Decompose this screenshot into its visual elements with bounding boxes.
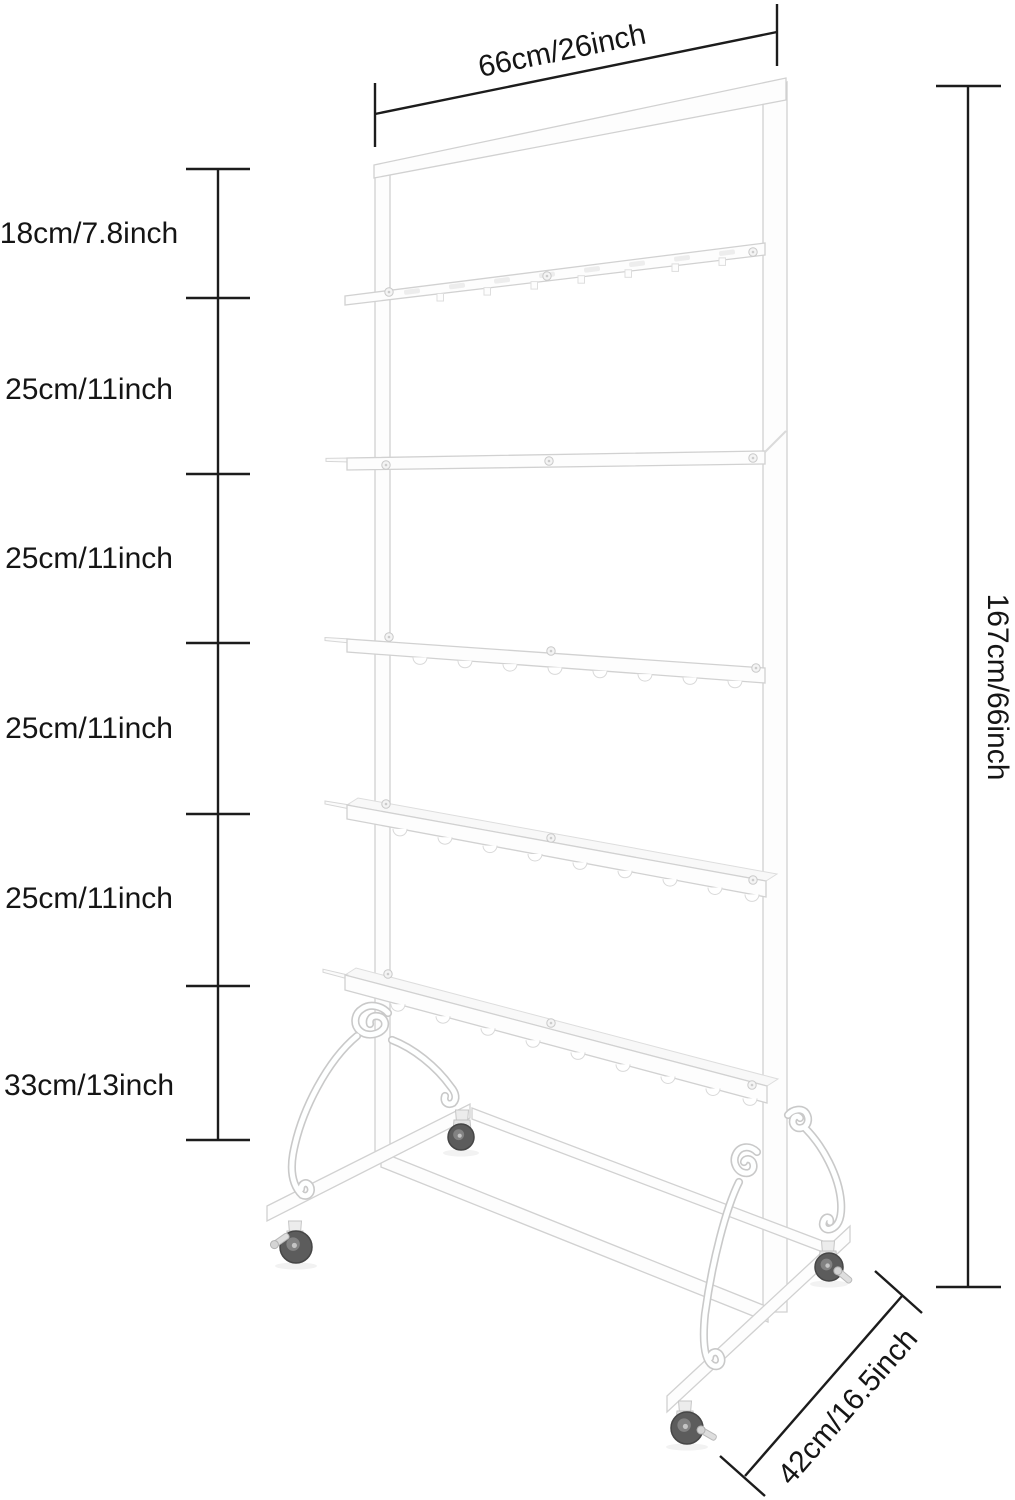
svg-text:18cm/7.8inch: 18cm/7.8inch <box>0 217 178 250</box>
svg-text:33cm/13inch: 33cm/13inch <box>4 1069 174 1102</box>
svg-text:25cm/11inch: 25cm/11inch <box>5 542 173 575</box>
svg-text:25cm/11inch: 25cm/11inch <box>5 373 173 406</box>
svg-text:25cm/11inch: 25cm/11inch <box>5 712 173 745</box>
svg-text:25cm/11inch: 25cm/11inch <box>5 882 173 915</box>
svg-text:167cm/66inch: 167cm/66inch <box>981 594 1014 781</box>
